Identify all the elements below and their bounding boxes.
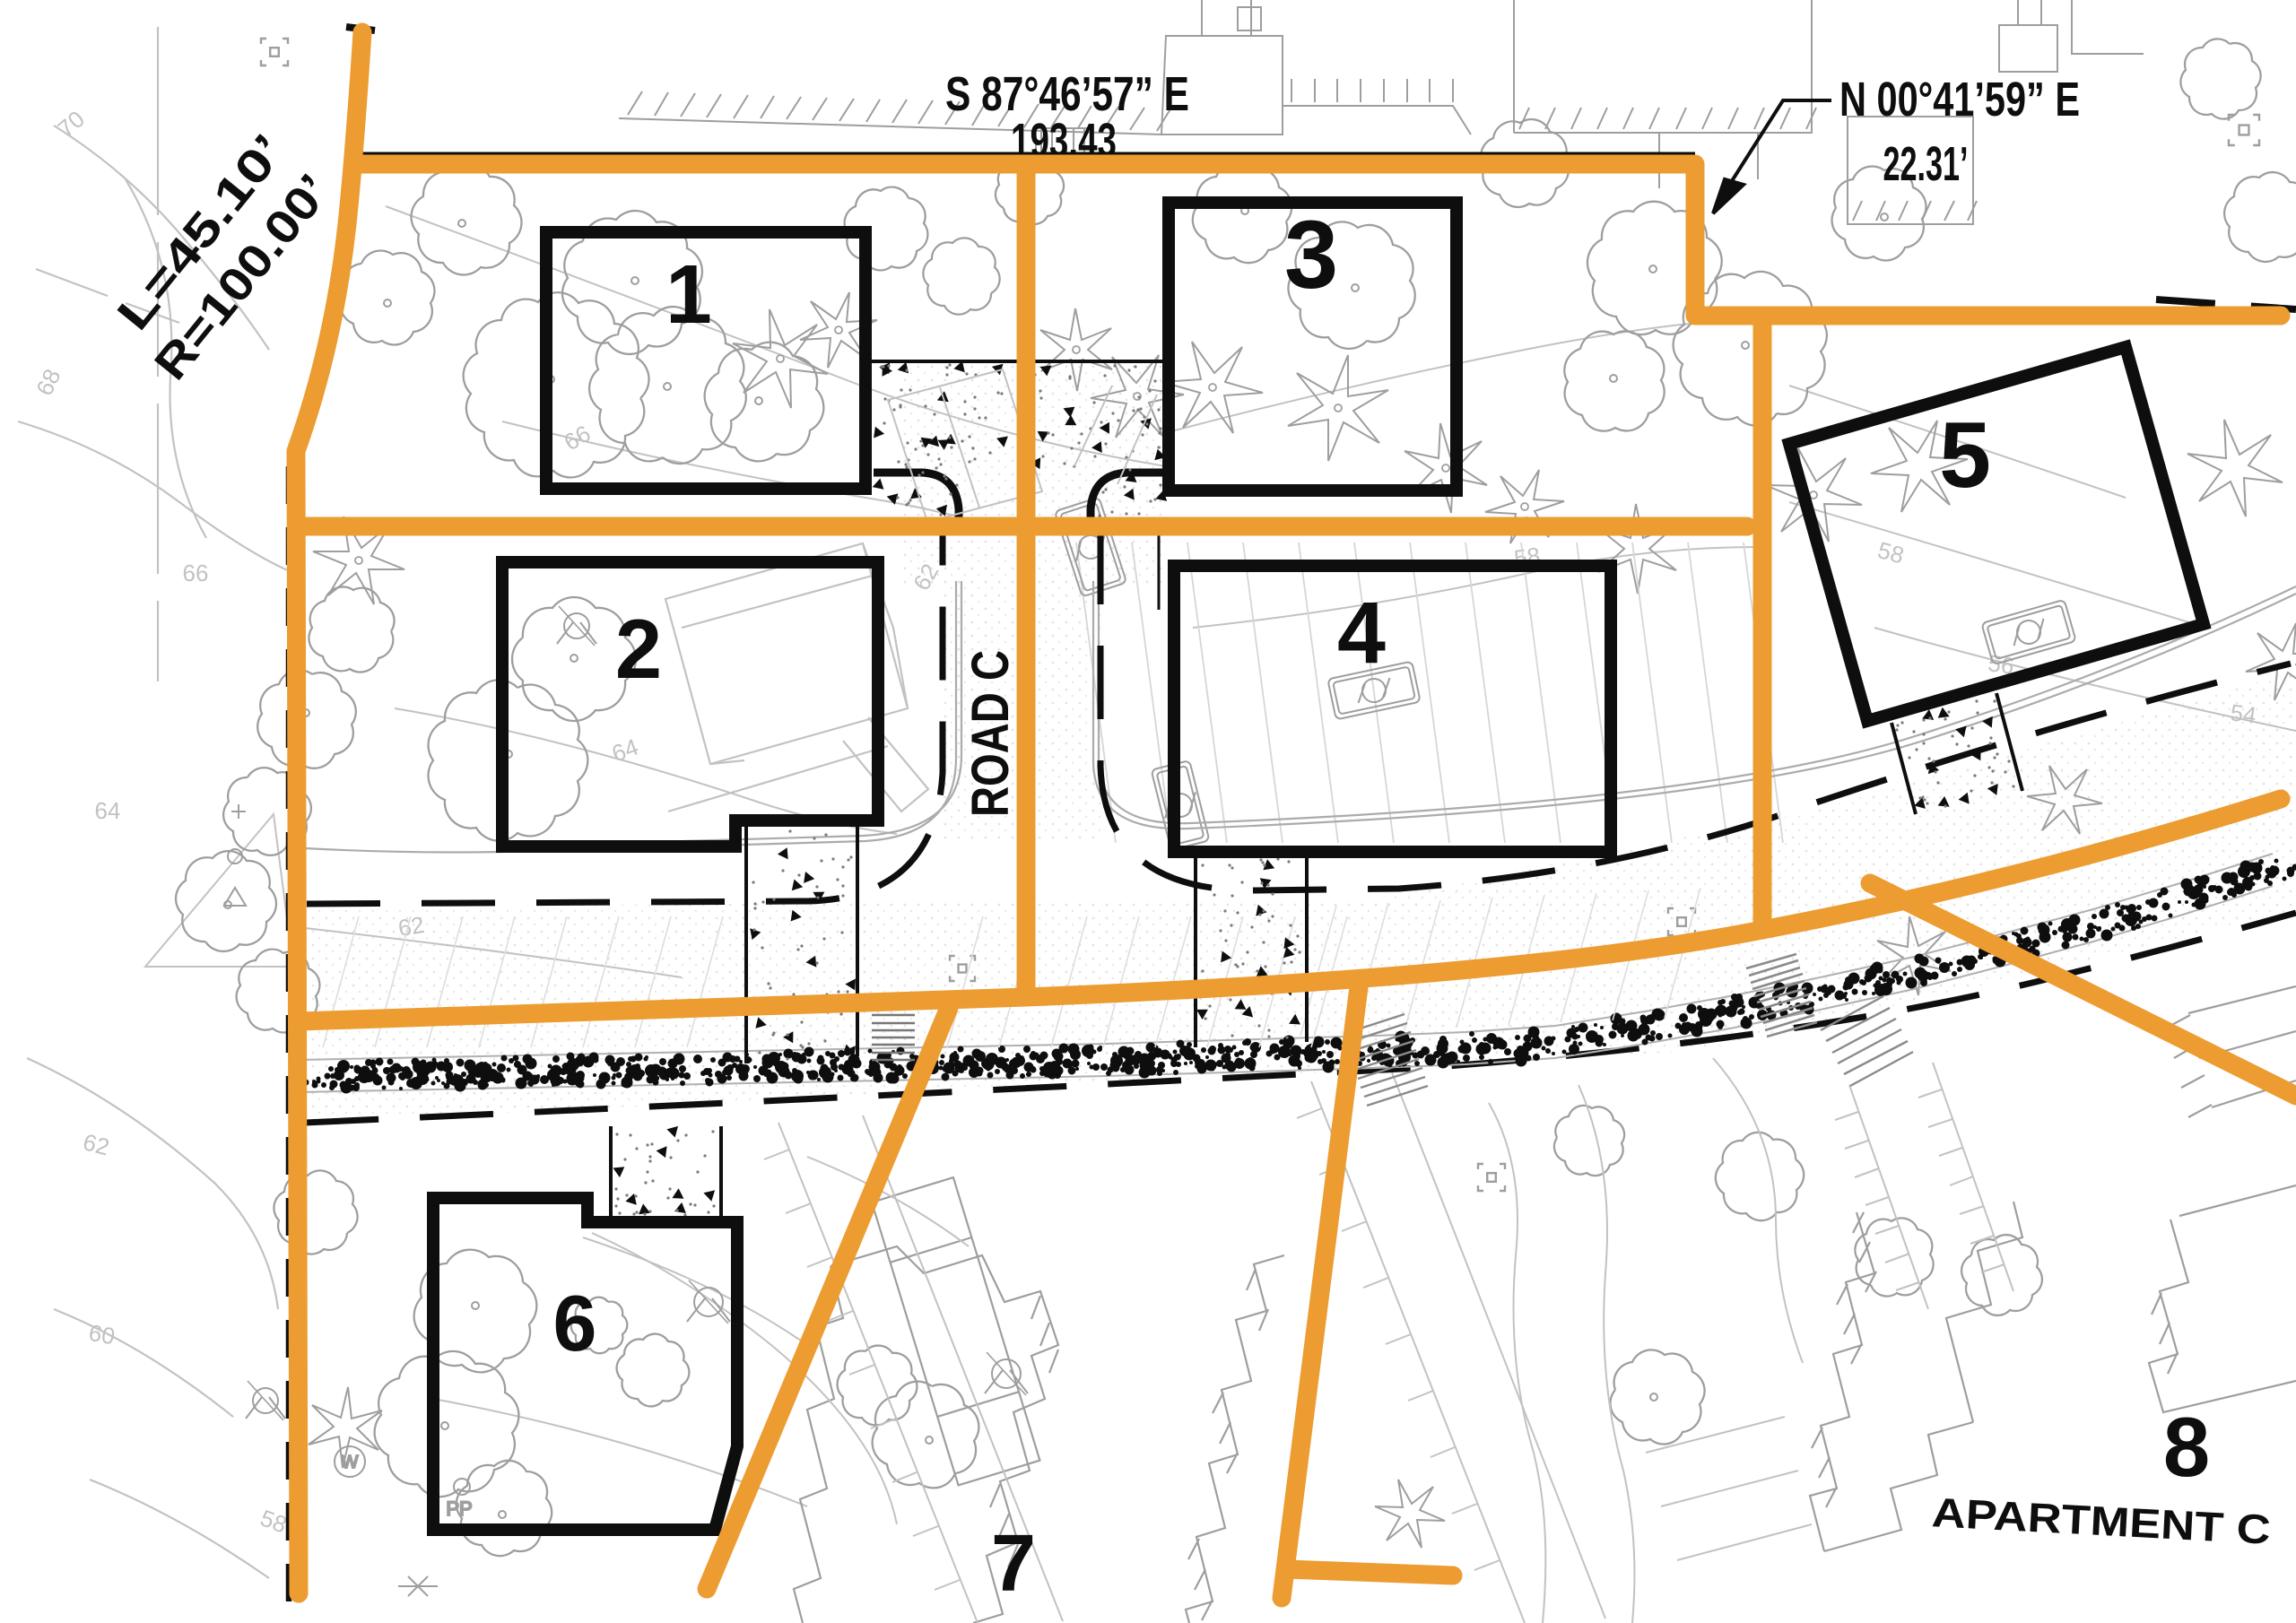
svg-text:2: 2 — [615, 602, 662, 696]
svg-text:7: 7 — [991, 1519, 1036, 1609]
svg-text:62: 62 — [396, 911, 427, 942]
svg-text:54: 54 — [2229, 699, 2258, 729]
svg-text:PP: PP — [446, 1497, 472, 1520]
svg-text:8: 8 — [2163, 1400, 2210, 1494]
svg-text:66: 66 — [183, 560, 209, 586]
svg-text:N 00°41’59” E: N 00°41’59” E — [1839, 73, 2080, 126]
svg-text:ROAD C: ROAD C — [961, 650, 1020, 817]
svg-text:60: 60 — [87, 1319, 117, 1350]
svg-text:3: 3 — [1284, 200, 1338, 308]
svg-text:1: 1 — [665, 247, 712, 341]
svg-text:S 87°46’57” E: S 87°46’57” E — [945, 67, 1189, 121]
svg-text:5: 5 — [1939, 404, 1991, 508]
svg-text:22.31’: 22.31’ — [1883, 137, 1969, 191]
svg-text:6: 6 — [553, 1279, 597, 1367]
svg-text:W: W — [342, 1453, 359, 1472]
svg-text:4: 4 — [1337, 584, 1386, 681]
svg-text:64: 64 — [95, 797, 121, 824]
